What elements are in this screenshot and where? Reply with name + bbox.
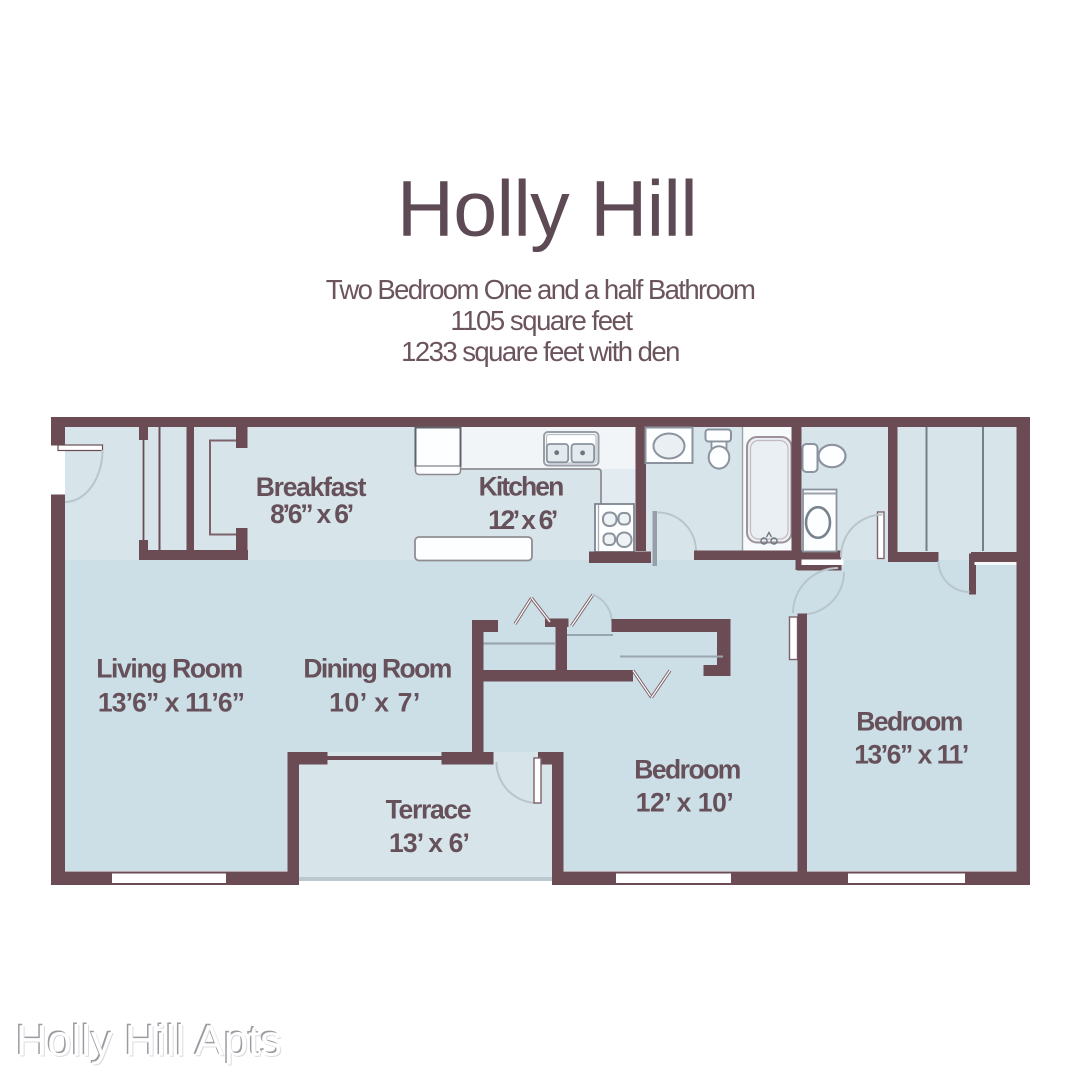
svg-text:Holly Hill Apts: Holly Hill Apts	[16, 1018, 282, 1066]
svg-text:12’ x 6’: 12’ x 6’	[488, 505, 557, 535]
svg-text:10’ x 7’: 10’ x 7’	[329, 688, 421, 718]
svg-text:1105 square feet: 1105 square feet	[450, 305, 633, 336]
svg-text:12’ x 10’: 12’ x 10’	[636, 788, 734, 818]
svg-text:Holly Hill: Holly Hill	[397, 164, 697, 253]
svg-text:Kitchen: Kitchen	[479, 472, 563, 502]
svg-text:Breakfast: Breakfast	[256, 472, 367, 502]
svg-text:Living Room: Living Room	[96, 654, 242, 684]
svg-text:Dining Room: Dining Room	[303, 654, 450, 684]
svg-text:Two Bedroom One and a half Bat: Two Bedroom One and a half Bathroom	[326, 274, 755, 305]
svg-text:13’6” x 11’6”: 13’6” x 11’6”	[98, 688, 244, 718]
svg-text:13’6” x 11’: 13’6” x 11’	[854, 740, 968, 770]
svg-text:Bedroom: Bedroom	[634, 755, 739, 785]
svg-text:Bedroom: Bedroom	[856, 707, 961, 737]
svg-text:Terrace: Terrace	[386, 795, 471, 825]
svg-text:1233 square feet with den: 1233 square feet with den	[401, 336, 679, 367]
svg-text:13’ x 6’: 13’ x 6’	[389, 828, 469, 858]
svg-text:8’6” x 6’: 8’6” x 6’	[270, 499, 353, 529]
